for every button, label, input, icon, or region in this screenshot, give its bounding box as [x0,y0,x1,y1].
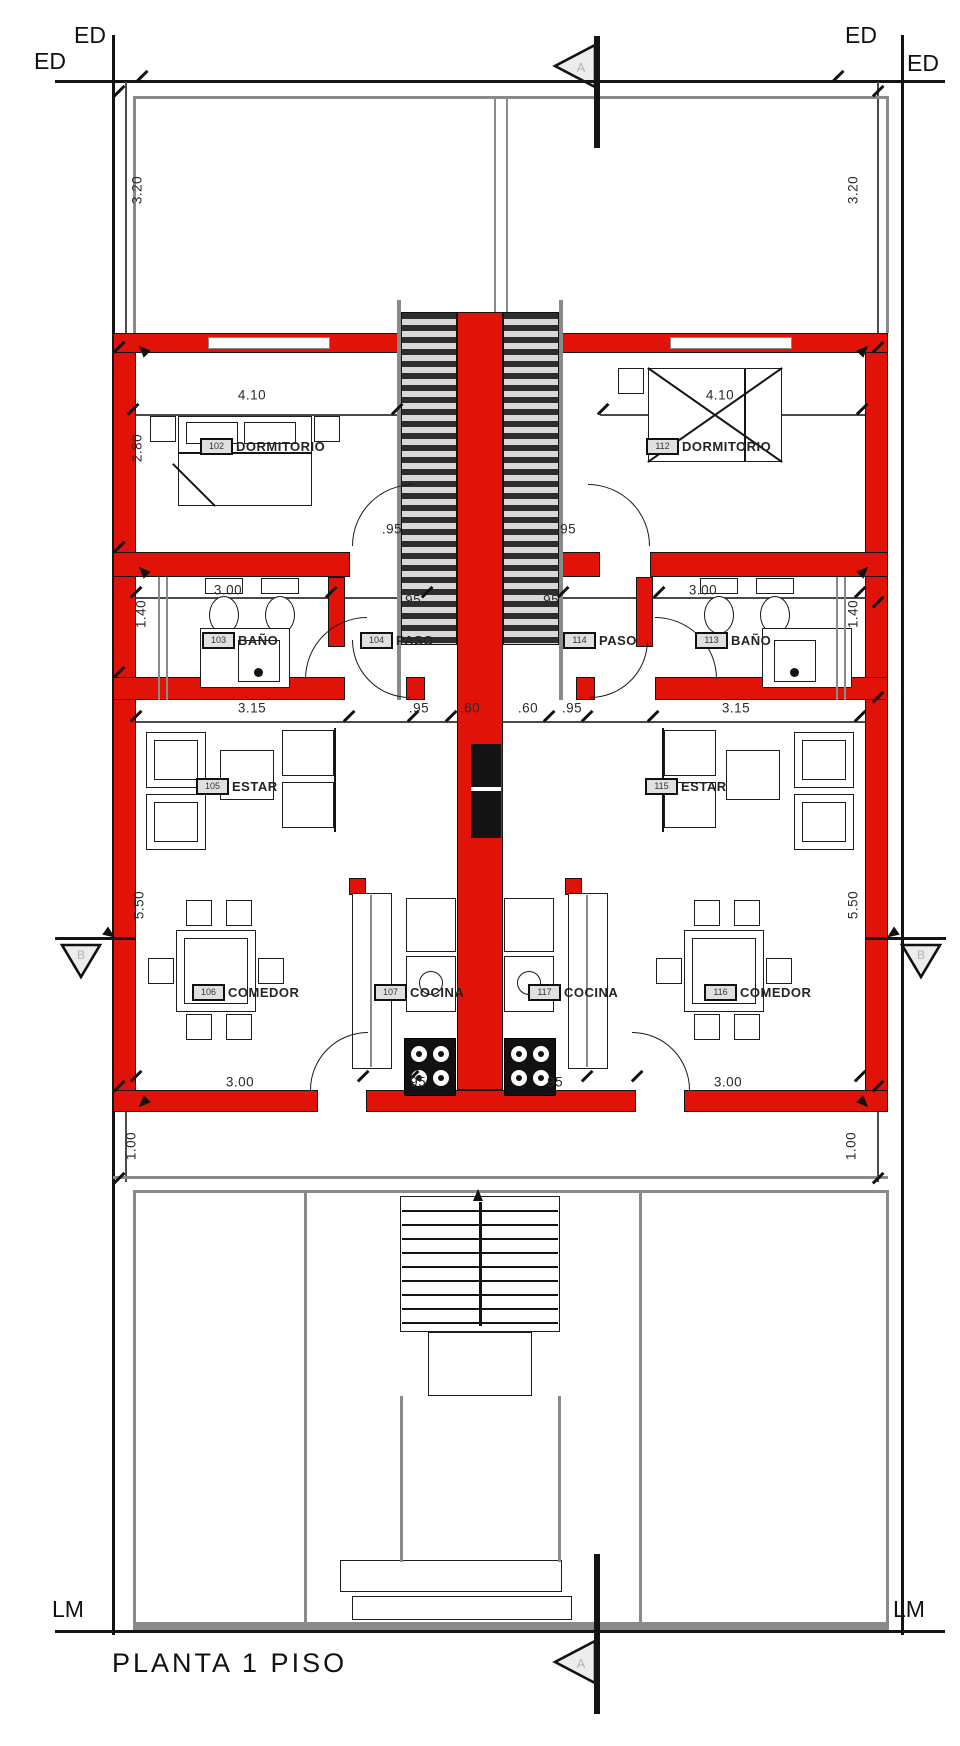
room-label-left-dormitorio: DORMITORIO [236,439,325,454]
room-label-left-cocina: COCINA [410,985,464,1000]
lower-right-edge [886,1190,889,1630]
room-label-left-paso: PASO [396,633,434,648]
corridor-line-left [400,1396,403,1562]
stove-burner-icon [433,1046,449,1062]
room-label-right-paso: PASO [599,633,637,648]
fridge-left [406,898,456,952]
room-tag-right-dormitorio: 112 [646,438,679,455]
door-arc-bedroom-right [588,484,650,546]
dimension-label: .95 [401,593,421,608]
balcony-front-edge-a [113,1176,888,1179]
svg-text:B: B [77,948,85,962]
chair-l1 [186,900,212,926]
stair-down-tread [402,1266,558,1268]
dimension-label: 3.00 [689,583,717,598]
dimension-label: .95 [382,522,402,537]
sofa-left-b [282,782,334,828]
stair-down-tread [402,1294,558,1296]
nightstand-right [618,368,644,394]
room-tag-left-dormitorio: 102 [200,438,233,455]
sink-drain-right [790,668,799,677]
entry-step-inner [352,1596,572,1620]
dimension-label-vertical: 5.50 [846,891,861,919]
patio-left-edge [133,96,136,333]
room-tag-left-paso: 104 [360,632,393,649]
stair-down-tread [402,1322,558,1324]
corridor-line-right [558,1396,561,1562]
room-tag-left-estar: 105 [196,778,229,795]
property-line-right [901,35,904,1635]
reference-line-top [55,80,945,83]
dimension-label: .95 [539,593,559,608]
dimension-label: 3.00 [214,583,242,598]
dimension-label-vertical: 2.80 [130,434,145,462]
counter-right [568,893,608,1069]
room-label-left-comedor: COMEDOR [228,985,299,1000]
armchair-right-a-cushion [802,740,846,780]
bidet-tank-right [756,578,794,594]
wall-exterior-right [865,333,888,1112]
dimension-tick-icon [581,1070,593,1082]
dimension-label: 3.15 [722,701,750,716]
wall-bath-vert-right [636,577,653,647]
dimension-label: .95 [543,1075,563,1090]
dimension-label: .60 [518,701,538,716]
patio-top-edge [133,96,889,99]
stair-down-tread [402,1308,558,1310]
stove-burner-icon [511,1070,527,1086]
sofa-right-a [664,730,716,776]
dimension-label-vertical: 5.50 [132,891,147,919]
stair-down-tread [402,1210,558,1212]
dimension-label-vertical: 1.00 [844,1132,859,1160]
stove-burner-icon [511,1046,527,1062]
svg-text:A: A [577,1656,586,1671]
patio-right-edge [886,96,889,333]
dimension-label: 3.00 [226,1075,254,1090]
wall-divider-right-b [650,552,888,577]
sink-drain-left [254,668,263,677]
sofa-left-a [282,730,334,776]
armchair-left-a-cushion [154,740,198,780]
stair-down-landing [428,1332,532,1396]
section-marker-bottom-icon: A [550,1638,598,1686]
dimension-label-vertical: 1.00 [124,1132,139,1160]
dimension-label-vertical: 3.20 [130,176,145,204]
door-arc-balcony-right [632,1032,690,1090]
ed-label-top-right-inner: ED [845,22,877,49]
section-marker-left-icon: B [58,942,104,982]
dimension-label: 4.10 [706,388,734,403]
room-label-left-baño: BAÑO [238,633,278,648]
dimension-label-vertical: 3.20 [846,176,861,204]
room-tag-left-comedor: 106 [192,984,225,1001]
municipal-line [55,1630,945,1633]
chair-r6 [766,958,792,984]
room-tag-left-baño: 103 [202,632,235,649]
chair-l5 [148,958,174,984]
section-marker-right-icon: B [898,942,944,982]
dimension-label: .95 [562,701,582,716]
stair-down-tread [402,1224,558,1226]
chair-l3 [186,1014,212,1040]
ed-label-top-left-outer: ED [34,48,66,75]
chair-r2 [734,900,760,926]
bidet-tank-left [261,578,299,594]
entry-step-outer [340,1560,562,1592]
window-top-right [670,337,792,349]
stove-burner-icon [533,1046,549,1062]
stair-down-tread [402,1252,558,1254]
stair-down-tread [402,1238,558,1240]
page-title: PLANTA 1 PISO [112,1648,347,1679]
duct-right-a [836,577,838,700]
stove-burner-icon [411,1046,427,1062]
patio-divider-a [494,96,496,333]
stove-burner-icon [433,1070,449,1086]
room-label-left-estar: ESTAR [232,779,278,794]
svg-text:A: A [577,60,586,75]
fridge-right [504,898,554,952]
dimension-label: 3.00 [714,1075,742,1090]
lm-label-right: LM [893,1596,925,1623]
armchair-left-b-cushion [154,802,198,842]
room-label-right-baño: BAÑO [731,633,771,648]
coffee-table-right [726,750,780,800]
duct-left-a [158,577,160,700]
room-label-right-comedor: COMEDOR [740,985,811,1000]
dimension-label-vertical: 1.40 [134,600,149,628]
lower-left-edge [133,1190,136,1630]
duct-right-b [844,577,846,700]
sofa-left-back [334,728,336,832]
room-tag-right-baño: 113 [695,632,728,649]
nightstand-left-a [150,416,176,442]
section-line-bottom [594,1554,600,1714]
lower-bottom-edge [133,1622,889,1630]
tv-console [471,744,501,838]
chair-l4 [226,1014,252,1040]
lm-label-left: LM [52,1596,84,1623]
ed-label-top-left-inner: ED [74,22,106,49]
armchair-right-b-cushion [802,802,846,842]
room-tag-right-estar: 115 [645,778,678,795]
dimension-label: 3.15 [238,701,266,716]
patio-divider-b [506,96,508,333]
chair-r3 [694,1014,720,1040]
chair-r4 [734,1014,760,1040]
tv-console-gap [471,787,501,791]
room-label-right-dormitorio: DORMITORIO [682,439,771,454]
section-line-left [55,937,135,940]
section-line-right [866,937,946,940]
dimension-label: .60 [460,701,480,716]
room-tag-right-paso: 114 [563,632,596,649]
svg-text:B: B [917,948,925,962]
balcony-front-edge-b [133,1190,889,1193]
window-top-left [208,337,330,349]
arrowhead-icon [473,1189,483,1201]
room-tag-right-cocina: 117 [528,984,561,1001]
counter-right-line [586,895,588,1067]
chair-l6 [258,958,284,984]
lower-inner-left [304,1190,307,1630]
door-arc-bedroom-left [352,484,414,546]
section-line-top [594,36,600,148]
chair-l2 [226,900,252,926]
room-tag-right-comedor: 116 [704,984,737,1001]
lower-inner-right [639,1190,642,1630]
room-tag-left-cocina: 107 [374,984,407,1001]
counter-left-line [370,895,372,1067]
dimension-label: .95 [409,701,429,716]
toilet-bowl-right [704,596,734,634]
dimension-label: .95 [406,1075,426,1090]
stair-down-tread [402,1280,558,1282]
dimension-label: 4.10 [238,388,266,403]
wall-divider-right-a [560,552,600,577]
chair-r5 [656,958,682,984]
floor-plan-canvas: ED ED ED ED LM LM PLANTA 1 PISO A A B B … [0,0,960,1746]
room-label-right-estar: ESTAR [681,779,727,794]
dimension-label: .95 [556,522,576,537]
dimension-label-vertical: 1.40 [846,600,861,628]
door-arc-paso-right [590,640,648,698]
duct-left-b [166,577,168,700]
chair-r1 [694,900,720,926]
ed-label-top-right-outer: ED [907,50,939,77]
room-label-right-cocina: COCINA [564,985,618,1000]
